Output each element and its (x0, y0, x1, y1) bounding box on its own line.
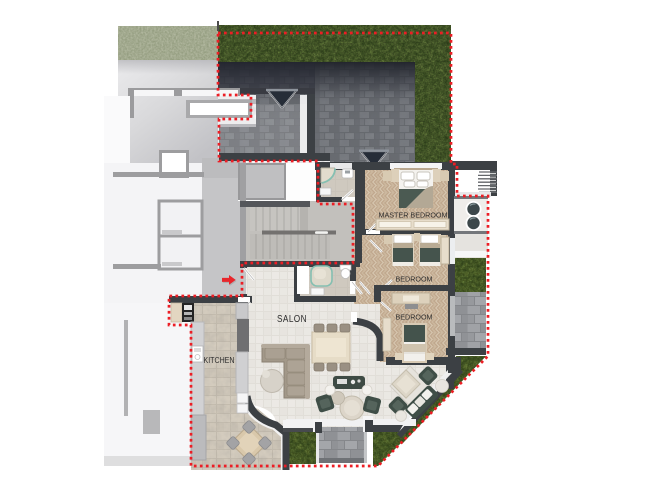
svg-text:BEDROOM: BEDROOM (396, 275, 433, 284)
svg-text:BEDROOM: BEDROOM (396, 313, 433, 322)
svg-text:SALON: SALON (277, 313, 307, 325)
svg-text:KITCHEN: KITCHEN (204, 355, 235, 365)
svg-text:MASTER BEDROOM: MASTER BEDROOM (379, 211, 448, 220)
